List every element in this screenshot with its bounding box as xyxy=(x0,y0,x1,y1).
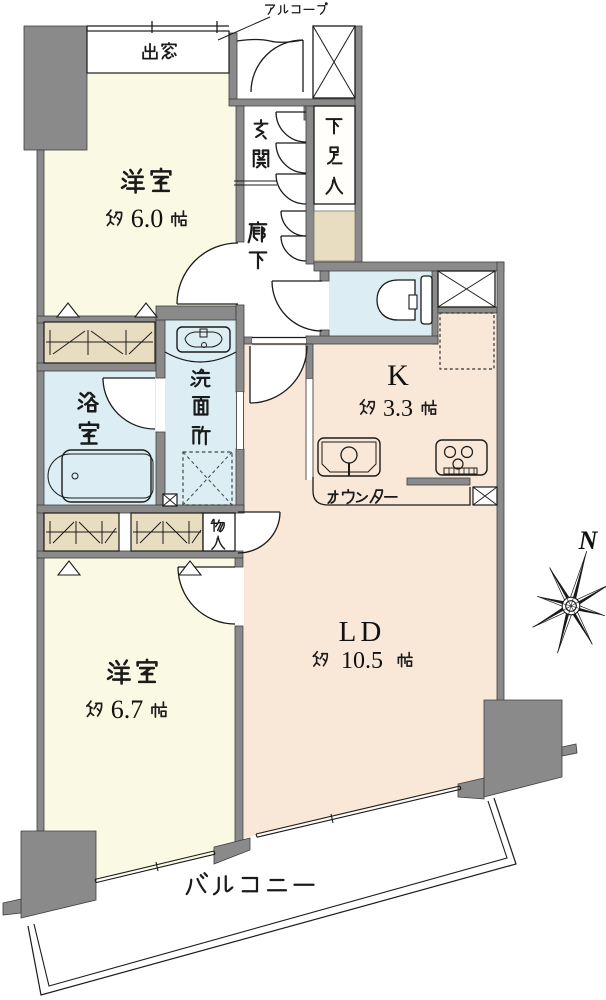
svg-text:3.3: 3.3 xyxy=(383,396,413,422)
svg-text:6.7: 6.7 xyxy=(111,695,144,724)
svg-text:10.5: 10.5 xyxy=(341,648,383,674)
svg-text:6.0: 6.0 xyxy=(131,204,164,233)
svg-text:N: N xyxy=(578,526,599,555)
svg-text:K: K xyxy=(387,359,409,392)
svg-text:LD: LD xyxy=(339,616,386,648)
